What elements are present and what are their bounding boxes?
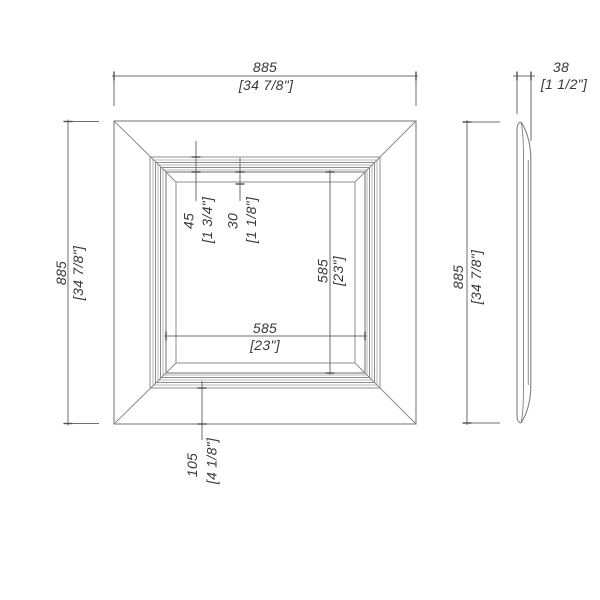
technical-drawing: 885 [34 7/8"] 885 [34 7/8"] 585 [23"] 58… [0, 0, 600, 600]
dim-opening-height-inch: [23"] [330, 255, 346, 287]
bevel-corner-line [355, 172, 365, 182]
dim-bevel-width: 30 [1 1/8"] [225, 158, 260, 244]
dim-bevel-width-mm: 30 [225, 213, 241, 229]
dim-side-height-inch: [34 7/8"] [468, 249, 484, 305]
dim-overall-height: 885 [34 7/8"] [53, 120, 99, 426]
profile-front-edge [517, 122, 521, 423]
dim-depth-inch: [1 1/2"] [540, 76, 588, 92]
dim-opening-width: 585 [23"] [165, 320, 367, 353]
dim-overall-height-inch: [34 7/8"] [70, 245, 86, 301]
dim-overall-width-mm: 885 [253, 59, 277, 75]
bevel-corner-line [355, 363, 365, 373]
dim-moulding-width-mm: 45 [181, 213, 197, 229]
dim-face-width-mm: 105 [184, 453, 200, 477]
bevel-corner-line [166, 363, 176, 373]
miter-joint-line [365, 121, 416, 172]
miter-joint-line [114, 121, 166, 172]
front-view [114, 121, 416, 424]
dim-side-height: 885 [34 7/8"] [450, 120, 500, 425]
dim-overall-height-mm: 885 [53, 261, 69, 285]
dim-opening-height-mm: 585 [315, 259, 331, 283]
dim-face-width: 105 [4 1/8"] [184, 381, 220, 485]
dim-moulding-width-inch: [1 3/4"] [199, 196, 215, 244]
dim-opening-width-mm: 585 [253, 320, 277, 336]
dim-overall-width: 885 [34 7/8"] [112, 59, 418, 106]
side-view [517, 122, 531, 423]
dim-opening-height: 585 [23"] [315, 170, 347, 375]
miter-joint-line [365, 373, 416, 424]
dim-face-width-inch: [4 1/8"] [204, 437, 220, 485]
dim-overall-width-inch: [34 7/8"] [238, 77, 294, 93]
profile-face-line [521, 122, 524, 423]
dim-opening-width-inch: [23"] [249, 337, 281, 353]
miter-joint-line [114, 373, 166, 424]
bevel-corner-line [166, 172, 176, 182]
dim-depth-mm: 38 [553, 59, 569, 75]
dim-side-height-mm: 885 [450, 265, 466, 289]
dim-moulding-width: 45 [1 3/4"] [181, 141, 216, 244]
dim-bevel-width-inch: [1 1/8"] [243, 196, 259, 244]
profile-back-edge [521, 122, 531, 422]
drawing-canvas: 885 [34 7/8"] 885 [34 7/8"] 585 [23"] 58… [0, 0, 600, 600]
